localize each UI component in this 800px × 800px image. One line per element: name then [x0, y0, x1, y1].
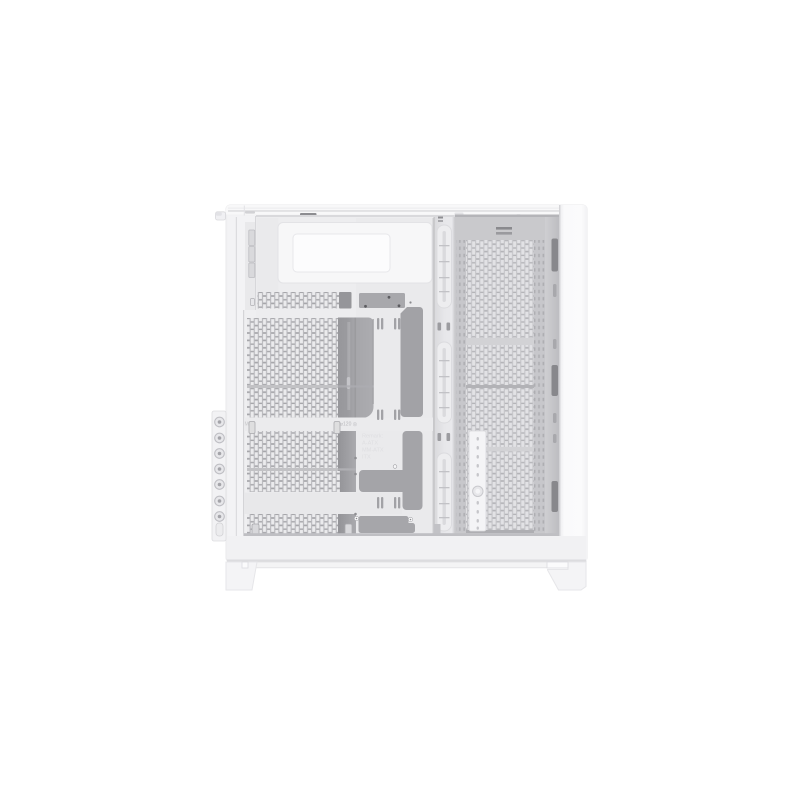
svg-text:A-ATX: A-ATX — [362, 441, 378, 447]
svg-text:Remark:: Remark: — [362, 434, 384, 440]
svg-text:⌀120 ◎: ⌀120 ◎ — [340, 422, 358, 428]
svg-text:ITX: ITX — [362, 455, 371, 461]
svg-text:MM-ATX: MM-ATX — [362, 448, 384, 454]
